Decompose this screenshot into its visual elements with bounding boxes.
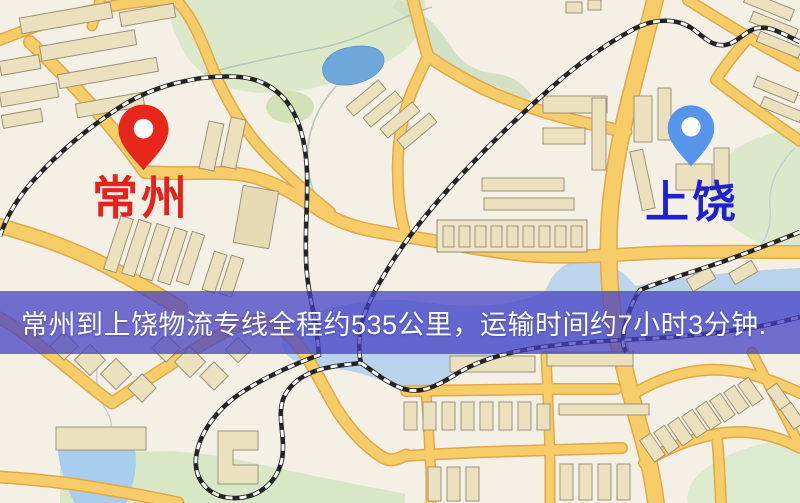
pin-hole	[134, 119, 154, 139]
map-background	[0, 0, 800, 503]
location-pin-icon	[116, 103, 171, 172]
destination-pin	[665, 104, 717, 173]
logistics-route-map: 常州 上饶 常州到上饶物流专线全程约535公里，运输时间约7小时3分钟.	[0, 0, 800, 503]
route-info-banner: 常州到上饶物流专线全程约535公里，运输时间约7小时3分钟.	[0, 291, 800, 354]
destination-city-label: 上饶	[636, 181, 748, 225]
origin-city-label: 常州	[82, 175, 200, 221]
route-info-text: 常州到上饶物流专线全程约535公里，运输时间约7小时3分钟.	[0, 303, 767, 342]
location-pin-icon	[665, 104, 717, 168]
origin-pin	[116, 103, 171, 177]
pin-hole	[681, 117, 700, 136]
